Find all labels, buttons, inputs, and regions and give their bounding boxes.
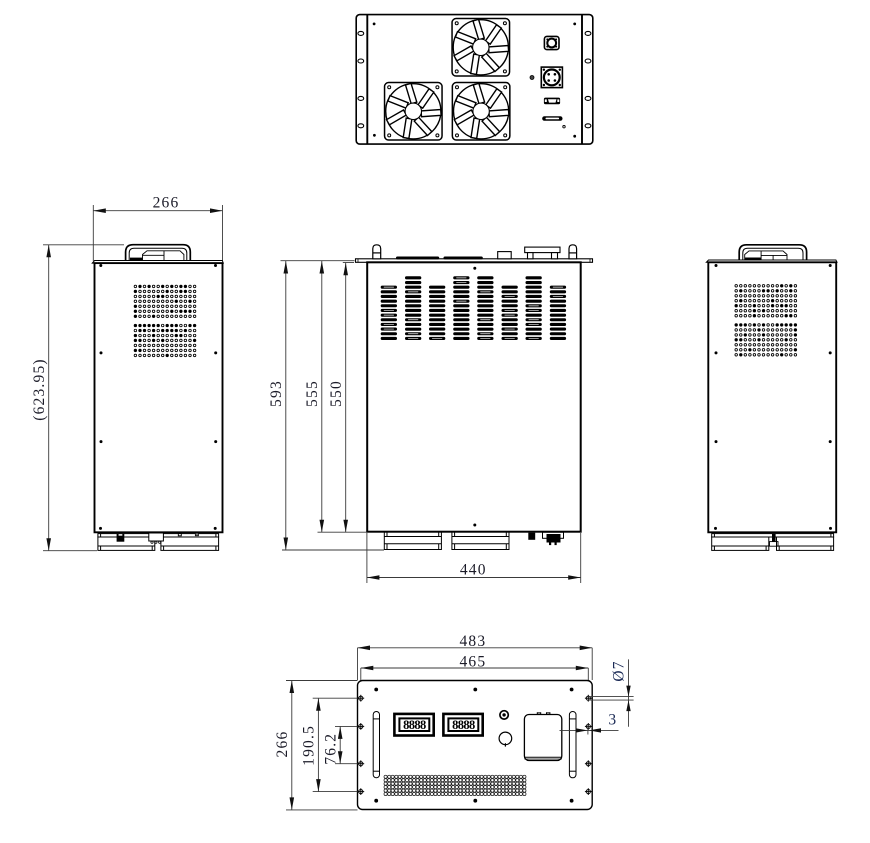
svg-text:550: 550 (328, 380, 345, 407)
svg-text:440: 440 (460, 561, 487, 578)
svg-text:3: 3 (608, 712, 617, 729)
svg-text:76.2: 76.2 (323, 733, 340, 765)
svg-text:483: 483 (459, 633, 486, 650)
svg-text:8888: 8888 (403, 718, 426, 732)
svg-text:465: 465 (459, 653, 486, 670)
svg-text:266: 266 (153, 195, 180, 212)
svg-text:Ø7: Ø7 (611, 660, 628, 681)
svg-text:555: 555 (304, 380, 321, 407)
svg-text:190.5: 190.5 (300, 725, 317, 766)
svg-text:593: 593 (268, 380, 285, 407)
svg-text:266: 266 (274, 731, 291, 758)
svg-text:(623.95): (623.95) (31, 358, 48, 421)
svg-text:8888: 8888 (452, 718, 475, 732)
